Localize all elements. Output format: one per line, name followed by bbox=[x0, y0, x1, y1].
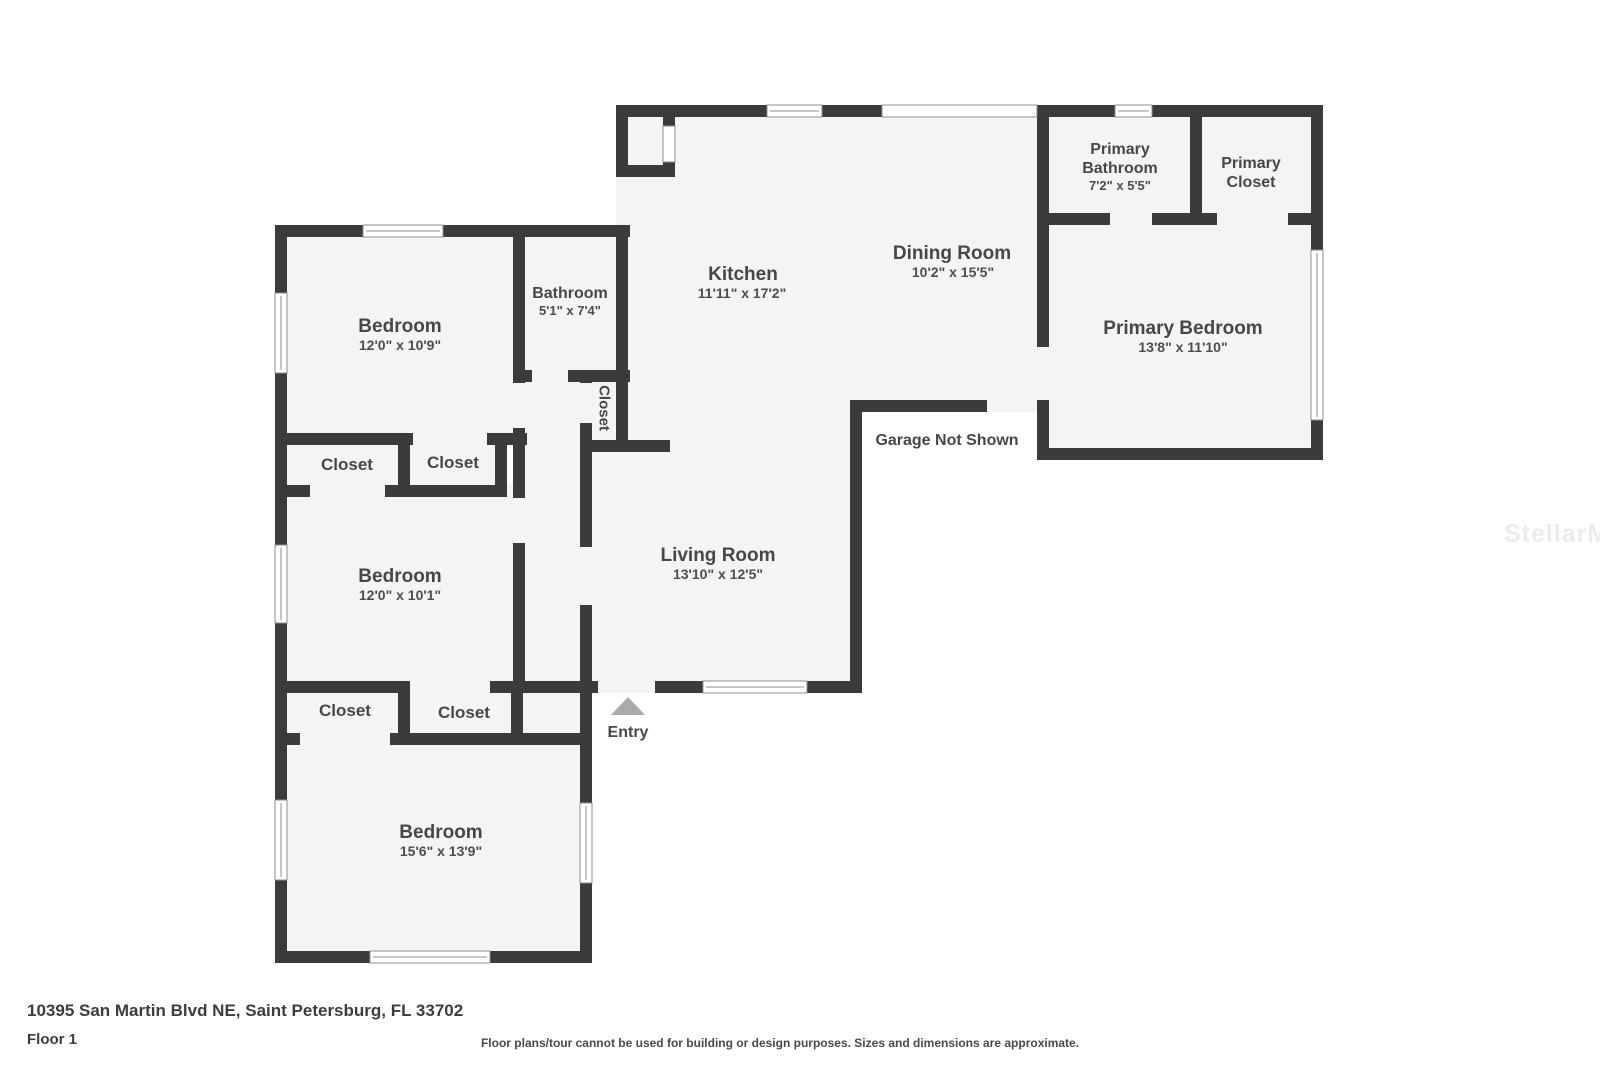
footer-address: 10395 San Martin Blvd NE, Saint Petersbu… bbox=[27, 1001, 463, 1021]
room-label-dining: Dining Room bbox=[893, 243, 1011, 264]
wall bbox=[1037, 105, 1049, 347]
entry-arrow-icon bbox=[611, 697, 645, 715]
footer-floor-label: Floor 1 bbox=[27, 1031, 77, 1048]
room-label-bedroom2: Bedroom bbox=[358, 566, 441, 587]
wall bbox=[663, 162, 675, 177]
window-icon bbox=[882, 105, 1037, 117]
wall bbox=[275, 880, 287, 963]
wall bbox=[580, 883, 592, 963]
room-label-primary-bathroom-line1: Primary bbox=[1090, 141, 1150, 158]
wall bbox=[275, 225, 363, 237]
room-label-primary-closet-line2: Closet bbox=[1227, 174, 1277, 191]
wall bbox=[511, 681, 523, 745]
wall bbox=[490, 951, 592, 963]
wall bbox=[616, 105, 767, 117]
wall bbox=[655, 681, 703, 693]
wall bbox=[495, 433, 507, 497]
wall bbox=[398, 433, 410, 497]
room-dims-bedroom2: 12'0" x 10'1" bbox=[359, 587, 441, 603]
wall bbox=[275, 681, 410, 693]
room-label-bathroom: Bathroom bbox=[532, 285, 608, 302]
garage-note: Garage Not Shown bbox=[875, 432, 1018, 449]
wall bbox=[822, 105, 882, 117]
wall bbox=[580, 423, 592, 547]
wall bbox=[616, 105, 628, 177]
room-label-primary-bathroom-line2: Bathroom bbox=[1082, 160, 1158, 177]
room-dims-dining: 10'2" x 15'5" bbox=[912, 264, 994, 280]
floorplan-page: { "watermark": "StellarMLS", "footer": {… bbox=[0, 0, 1600, 1067]
watermark: StellarMLS bbox=[1504, 520, 1600, 548]
room-label-kitchen: Kitchen bbox=[708, 264, 778, 285]
room-label-closet-row2-right: Closet bbox=[438, 703, 490, 722]
room-label-bedroom3: Bedroom bbox=[399, 822, 482, 843]
wall bbox=[1037, 448, 1323, 460]
room-dims-kitchen: 11'11" x 17'2" bbox=[698, 285, 786, 301]
wall bbox=[1311, 420, 1323, 460]
wall bbox=[580, 693, 592, 803]
floorplan-svg: Kitchen 11'11" x 17'2" Dining Room 10'2"… bbox=[0, 0, 1600, 1067]
room-dims-bedroom1: 12'0" x 10'9" bbox=[359, 337, 441, 353]
wall bbox=[580, 370, 592, 383]
wall bbox=[275, 225, 287, 293]
room-dims-bedroom3: 15'6" x 13'9" bbox=[400, 843, 482, 859]
wall bbox=[390, 733, 592, 745]
wall bbox=[398, 681, 410, 745]
wall bbox=[1152, 105, 1323, 117]
wall bbox=[588, 440, 670, 452]
window-icon bbox=[663, 126, 675, 162]
wall bbox=[1190, 105, 1202, 225]
room-label-closet-row1-right: Closet bbox=[427, 453, 479, 472]
wall bbox=[275, 433, 413, 445]
wall bbox=[1152, 213, 1217, 225]
wall bbox=[850, 400, 862, 693]
wall bbox=[275, 373, 287, 545]
wall bbox=[850, 400, 987, 412]
room-label-hall-closet: Closet bbox=[596, 385, 613, 431]
wall bbox=[513, 428, 525, 498]
wall bbox=[1311, 105, 1323, 250]
room-label-bedroom1: Bedroom bbox=[358, 316, 441, 337]
wall bbox=[1037, 400, 1049, 460]
room-dims-primary-bedroom: 13'8" x 11'10" bbox=[1138, 339, 1227, 355]
wall bbox=[513, 543, 525, 693]
footer-disclaimer: Floor plans/tour cannot be used for buil… bbox=[380, 1036, 1180, 1050]
wall bbox=[616, 225, 628, 452]
room-label-closet-row1-left: Closet bbox=[321, 455, 373, 474]
wall bbox=[443, 225, 630, 237]
entry-label: Entry bbox=[608, 724, 649, 741]
room-label-living: Living Room bbox=[660, 545, 775, 566]
wall bbox=[580, 605, 592, 693]
room-label-primary-closet-line1: Primary bbox=[1221, 155, 1281, 172]
wall bbox=[663, 105, 675, 126]
entry-marker: Entry bbox=[608, 697, 649, 741]
wall bbox=[513, 225, 525, 383]
room-label-closet-row2-left: Closet bbox=[319, 701, 371, 720]
room-dims-living: 13'10" x 12'5" bbox=[673, 566, 763, 582]
room-dims-bathroom: 5'1" x 7'4" bbox=[539, 303, 601, 318]
room-label-primary-bedroom: Primary Bedroom bbox=[1103, 318, 1262, 339]
wall bbox=[275, 951, 370, 963]
wall bbox=[275, 623, 287, 800]
room-dims-primary-bathroom: 7'2" x 5'5" bbox=[1089, 178, 1151, 193]
